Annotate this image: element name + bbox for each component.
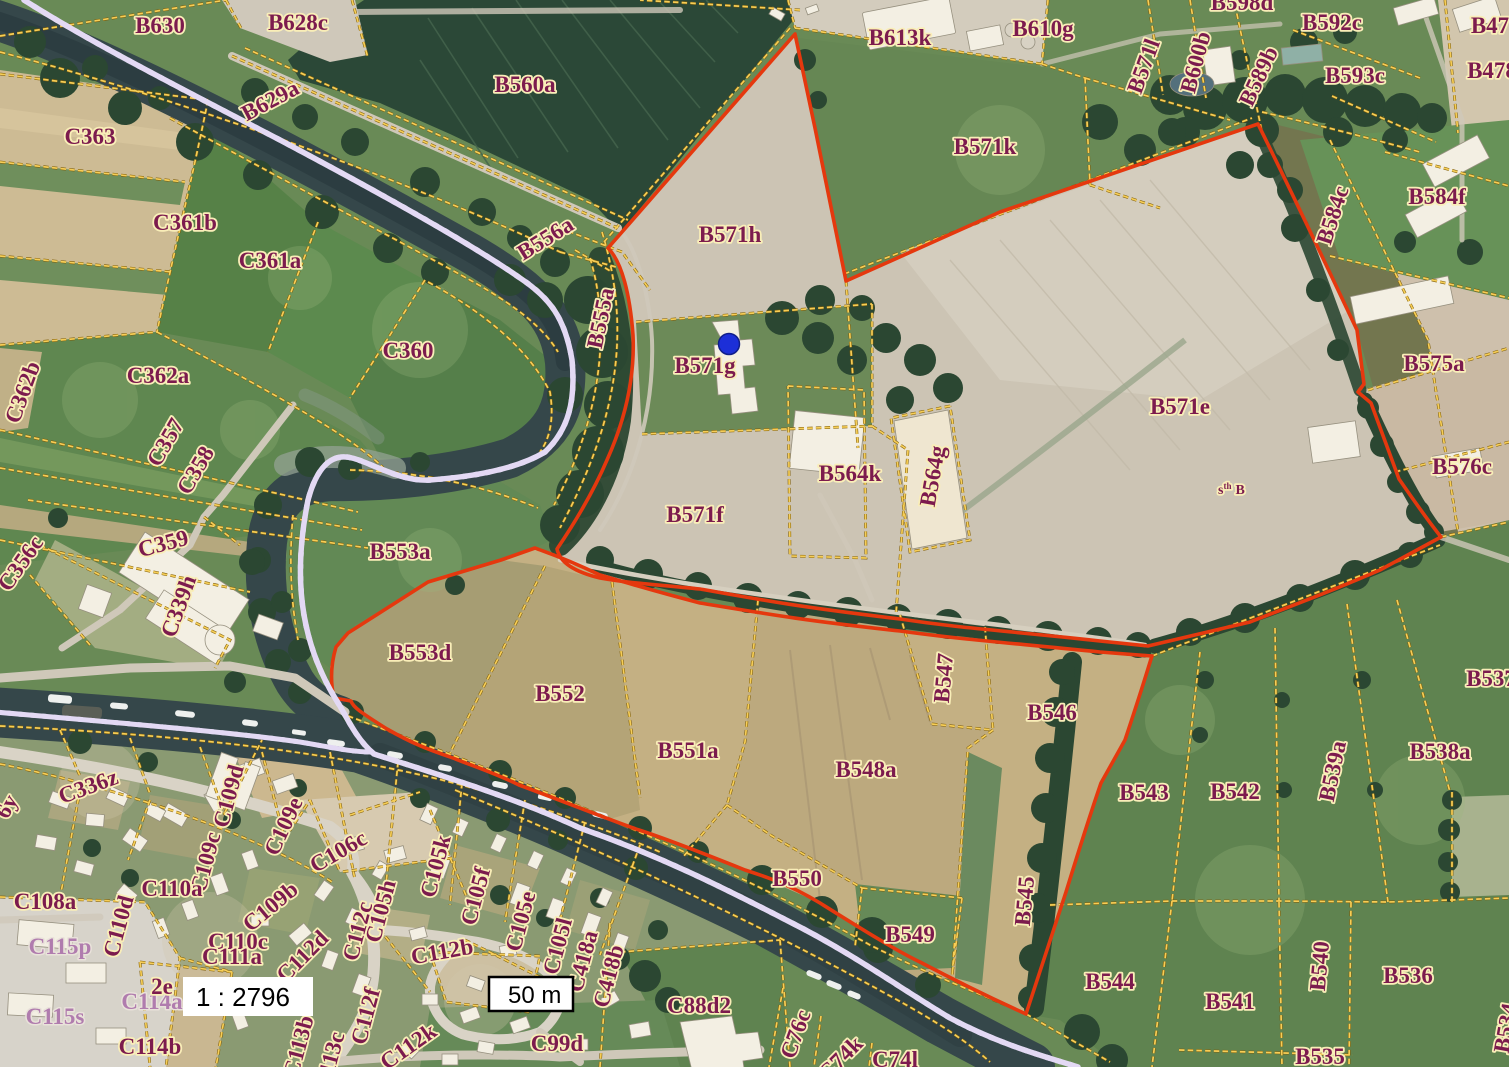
svg-text:C108a: C108a xyxy=(14,889,77,914)
svg-text:C110a: C110a xyxy=(141,876,203,901)
svg-text:B552: B552 xyxy=(535,681,585,706)
svg-text:C115s: C115s xyxy=(26,1004,85,1029)
svg-text:B628c: B628c xyxy=(268,10,328,35)
svg-text:B598d: B598d xyxy=(1211,0,1274,15)
svg-text:B545: B545 xyxy=(1010,875,1039,927)
svg-text:B613k: B613k xyxy=(869,25,932,50)
svg-text:B571g: B571g xyxy=(674,353,736,378)
svg-text:B47: B47 xyxy=(1471,13,1509,38)
svg-text:B551a: B551a xyxy=(657,738,719,763)
svg-text:B610g: B610g xyxy=(1012,16,1074,41)
svg-text:B575a: B575a xyxy=(1403,351,1465,376)
svg-text:C363: C363 xyxy=(64,124,115,149)
svg-text:B592c: B592c xyxy=(1302,10,1362,35)
svg-text:B564k: B564k xyxy=(819,461,882,486)
svg-text:B541: B541 xyxy=(1205,989,1255,1014)
svg-text:B550: B550 xyxy=(772,866,822,891)
svg-text:B546: B546 xyxy=(1027,700,1077,725)
svg-text:C362a: C362a xyxy=(127,363,190,388)
svg-text:B536: B536 xyxy=(1383,963,1433,988)
svg-text:C114b: C114b xyxy=(119,1034,182,1059)
svg-text:2e: 2e xyxy=(151,974,173,999)
svg-text:B571k: B571k xyxy=(954,134,1017,159)
svg-text:50 m: 50 m xyxy=(508,982,561,1009)
svg-text:B543: B543 xyxy=(1119,780,1169,805)
svg-text:B553d: B553d xyxy=(389,640,452,665)
svg-text:B540: B540 xyxy=(1305,940,1334,992)
svg-text:B538a: B538a xyxy=(1409,739,1471,764)
svg-text:C115p: C115p xyxy=(29,934,92,959)
svg-text:B478: B478 xyxy=(1467,58,1509,83)
svg-text:C111a: C111a xyxy=(202,944,263,969)
svg-text:B553a: B553a xyxy=(369,539,431,564)
svg-text:B571h: B571h xyxy=(699,222,762,247)
svg-text:1 : 2796: 1 : 2796 xyxy=(196,982,290,1012)
svg-text:B549: B549 xyxy=(885,922,935,947)
svg-text:B560a: B560a xyxy=(494,72,556,97)
svg-text:B542: B542 xyxy=(1210,779,1260,804)
svg-text:B548a: B548a xyxy=(835,757,897,782)
svg-text:B544: B544 xyxy=(1085,969,1135,994)
svg-text:B547: B547 xyxy=(929,652,958,704)
svg-text:C99d: C99d xyxy=(531,1031,584,1056)
svg-text:B571e: B571e xyxy=(1150,394,1210,419)
svg-text:C74l: C74l xyxy=(872,1047,918,1067)
svg-text:C88d2: C88d2 xyxy=(667,993,731,1018)
svg-text:C361a: C361a xyxy=(239,248,302,273)
svg-text:C360: C360 xyxy=(382,338,433,363)
svg-text:B630: B630 xyxy=(135,13,185,38)
svg-text:B571f: B571f xyxy=(666,502,724,527)
svg-text:B593c: B593c xyxy=(1325,63,1385,88)
svg-text:B537: B537 xyxy=(1466,666,1509,691)
svg-text:C361b: C361b xyxy=(153,210,217,235)
svg-text:B535: B535 xyxy=(1295,1044,1345,1067)
svg-text:B584f: B584f xyxy=(1408,184,1466,209)
svg-text:B576c: B576c xyxy=(1432,454,1492,479)
